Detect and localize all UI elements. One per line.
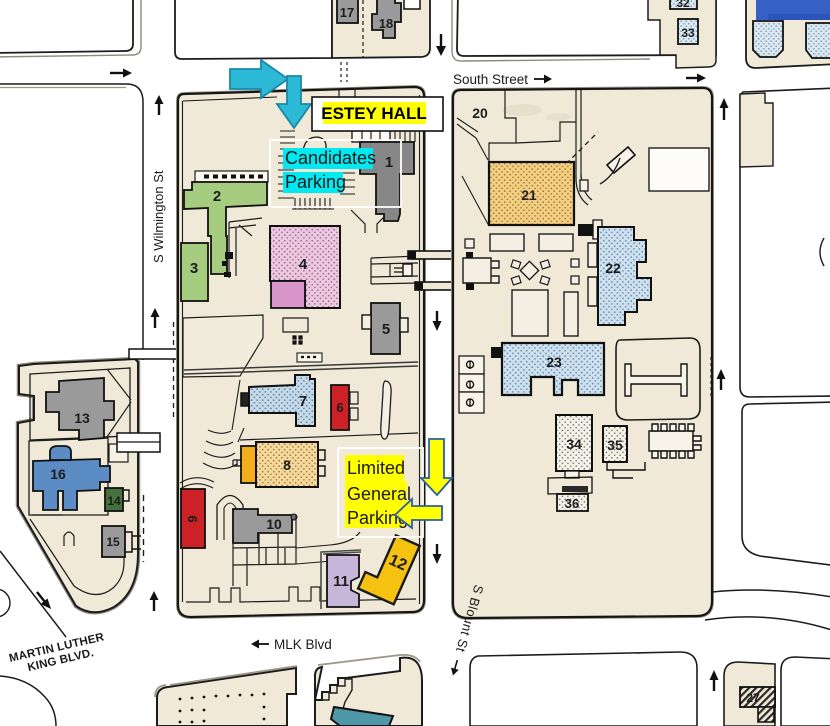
svg-text:20: 20: [472, 105, 488, 121]
svg-text:15: 15: [106, 535, 120, 549]
svg-text:3: 3: [190, 260, 198, 277]
svg-text:27: 27: [746, 691, 760, 705]
svg-text:9: 9: [185, 515, 200, 522]
svg-text:35: 35: [607, 437, 623, 453]
svg-text:11: 11: [333, 573, 349, 590]
svg-text:34: 34: [566, 436, 582, 452]
svg-text:33: 33: [681, 26, 695, 40]
svg-text:4: 4: [299, 256, 308, 273]
svg-text:Parking: Parking: [285, 172, 346, 192]
svg-text:16: 16: [50, 466, 66, 482]
svg-text:32: 32: [676, 0, 690, 10]
svg-text:Candidates: Candidates: [285, 148, 376, 168]
svg-text:7: 7: [299, 393, 307, 410]
svg-text:1: 1: [385, 154, 393, 171]
svg-text:ESTEY HALL: ESTEY HALL: [321, 104, 426, 123]
svg-text:5: 5: [382, 321, 390, 338]
svg-text:23: 23: [546, 354, 562, 370]
svg-text:10: 10: [266, 516, 282, 532]
svg-text:21: 21: [521, 187, 537, 203]
svg-text:General: General: [347, 484, 411, 504]
svg-text:17: 17: [340, 5, 354, 20]
svg-text:18: 18: [379, 16, 393, 31]
svg-text:22: 22: [605, 260, 621, 276]
svg-text:S Wilmington St: S Wilmington St: [151, 170, 166, 263]
svg-text:6: 6: [336, 400, 343, 415]
svg-text:2: 2: [213, 188, 221, 205]
svg-text:Limited: Limited: [347, 458, 405, 478]
svg-text:MLK Blvd: MLK Blvd: [274, 637, 332, 652]
svg-text:36: 36: [565, 496, 579, 511]
svg-text:13: 13: [74, 410, 90, 426]
svg-text:14: 14: [107, 494, 121, 508]
svg-text:8: 8: [283, 457, 291, 473]
svg-text:South Street: South Street: [453, 72, 528, 87]
